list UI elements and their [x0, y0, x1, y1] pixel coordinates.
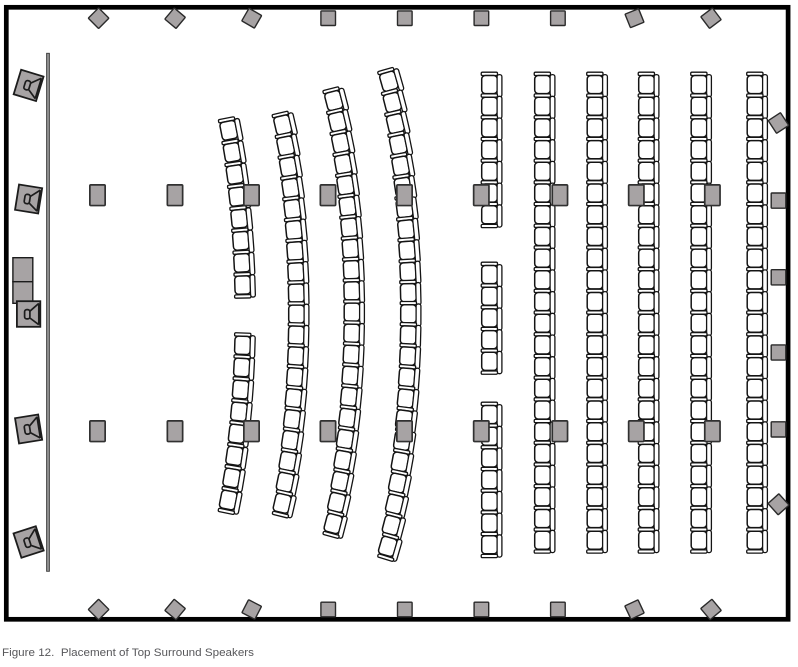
svg-text:Figure 12. Placement of Top S: Figure 12. Placement of Top Surround Spe…: [2, 647, 255, 659]
